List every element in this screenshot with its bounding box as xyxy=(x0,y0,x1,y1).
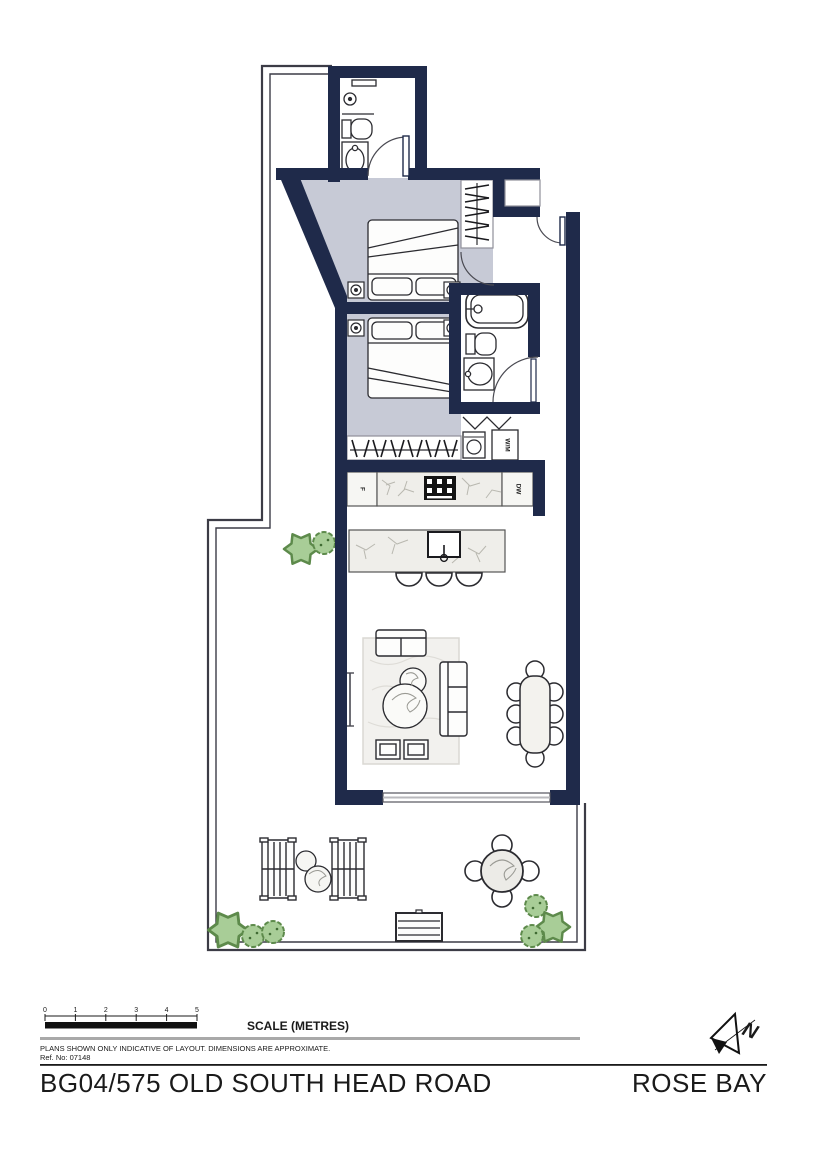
scale-mark: 1 xyxy=(73,1007,77,1014)
toilet-icon xyxy=(466,333,496,355)
north-arrow-icon xyxy=(711,1014,739,1053)
scale-mark: 2 xyxy=(104,1007,108,1014)
scale-mark: 0 xyxy=(43,1007,47,1014)
wardrobe-entry xyxy=(461,180,493,248)
toilet-icon xyxy=(342,119,372,139)
scale-label: SCALE (METRES) xyxy=(247,1019,349,1033)
wardrobe-bedroom xyxy=(347,436,461,460)
fridge: F xyxy=(347,472,377,506)
divider-line xyxy=(40,1037,580,1040)
dishwasher: DW xyxy=(502,472,533,506)
bar-stools xyxy=(396,573,482,586)
kitchen-bench xyxy=(377,472,502,506)
ref-number: Ref. No: 07148 xyxy=(40,1053,90,1062)
outdoor-table xyxy=(481,850,523,892)
outdoor-dining-set xyxy=(465,835,539,907)
address-title: BG04/575 OLD SOUTH HEAD ROAD xyxy=(40,1068,492,1098)
scale-bar: 0 1 2 3 4 5 SCALE (METRES) xyxy=(40,1007,580,1040)
sofa-three-seat xyxy=(440,662,467,736)
sliding-door-terrace xyxy=(383,793,550,802)
laundry-cabinet: W/M xyxy=(492,430,518,460)
island-bench xyxy=(349,530,505,572)
laundry-closet: W/M xyxy=(463,417,518,460)
disclaimer: PLANS SHOWN ONLY INDICATIVE OF LAYOUT. D… xyxy=(40,1044,330,1053)
fridge-label: F xyxy=(358,487,365,491)
washer-label: W/M xyxy=(503,438,510,451)
washing-machine-icon xyxy=(463,432,485,458)
shower-rail-icon xyxy=(352,80,376,86)
door-living-leaf xyxy=(347,673,354,726)
living-room xyxy=(363,630,563,767)
north-letter: N xyxy=(739,1018,761,1044)
scale-mark: 4 xyxy=(165,1007,169,1014)
door-entry xyxy=(537,217,565,245)
title-rule xyxy=(40,1064,767,1066)
suburb-title: ROSE BAY xyxy=(632,1068,767,1098)
footer-text: PLANS SHOWN ONLY INDICATIVE OF LAYOUT. D… xyxy=(40,1044,767,1098)
cooktop-icon xyxy=(424,476,456,500)
kitchen: F DW xyxy=(347,472,533,586)
dishwasher-label: DW xyxy=(514,484,521,496)
floorplan-drawing: W/M F xyxy=(0,0,813,1150)
entry-niche xyxy=(505,180,540,206)
compass: N xyxy=(711,1014,761,1054)
bathroom-ensuite xyxy=(464,290,528,390)
door-bathroom-top xyxy=(368,136,409,176)
floorplan-page: W/M F xyxy=(0,0,813,1150)
basin-icon xyxy=(464,358,494,390)
side-tables xyxy=(296,851,331,892)
sun-lounger xyxy=(330,838,366,900)
sun-lounger xyxy=(260,838,296,900)
door-ensuite xyxy=(493,357,540,402)
scale-mark: 3 xyxy=(134,1007,138,1014)
dining-set xyxy=(507,661,563,767)
storage-bench xyxy=(396,910,442,941)
sofa-two-seat xyxy=(376,630,426,656)
scale-mark: 5 xyxy=(195,1007,199,1014)
bathtub-icon xyxy=(466,290,528,328)
dining-table xyxy=(520,676,550,753)
sink-icon xyxy=(428,532,460,561)
